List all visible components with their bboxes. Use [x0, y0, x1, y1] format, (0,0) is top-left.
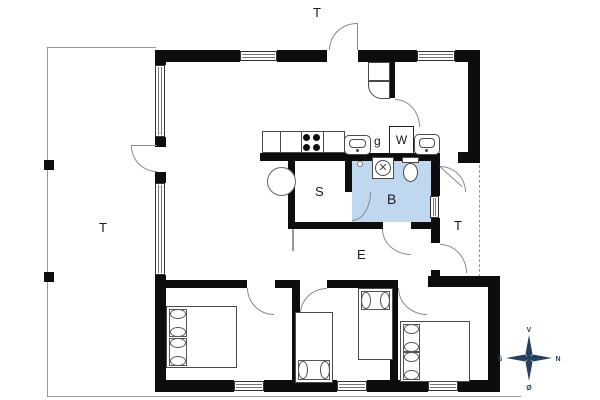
- utility-cabinet: [368, 81, 390, 99]
- wall-segment: [163, 280, 247, 288]
- bedroom3-door-arc: [398, 288, 427, 315]
- bathroom-sink: [414, 134, 440, 155]
- wall-segment: [458, 152, 480, 163]
- wall-segment: [327, 280, 398, 288]
- floor-drain: [357, 161, 363, 167]
- wall-segment: [431, 270, 440, 278]
- hall-label: E: [357, 248, 366, 261]
- compass-arm-left: [506, 355, 529, 362]
- screen-line: [292, 229, 294, 251]
- stove-burner: [303, 134, 310, 141]
- terrace-top-label: T: [313, 6, 321, 19]
- compass-west-label: V: [527, 327, 532, 334]
- pillow: [169, 309, 187, 337]
- floor-drain-label: g: [374, 135, 381, 147]
- wall-segment: [288, 222, 352, 229]
- toilet-bowl: [403, 163, 418, 182]
- counter-divider: [280, 132, 281, 152]
- window: [155, 65, 165, 137]
- stove-burner: [313, 144, 320, 151]
- wall-segment: [155, 50, 166, 65]
- compass-north-label: N: [555, 356, 560, 363]
- utility-door-arc: [395, 99, 420, 127]
- bathroom-label: B: [387, 192, 396, 206]
- bathroom-door-arc: [382, 229, 411, 255]
- utility-cabinet: [368, 62, 390, 81]
- pillow: [169, 338, 187, 366]
- wall-segment: [155, 172, 166, 183]
- compass-arm-up: [526, 335, 533, 358]
- compass-star: V N S Ø: [498, 327, 561, 392]
- wall-segment: [431, 218, 440, 243]
- bedroom1-door-arc: [247, 288, 274, 315]
- terrace-edge-top: [48, 47, 156, 48]
- terrace-door-arc: [131, 146, 157, 172]
- washing-machine-label: W: [396, 133, 407, 147]
- window: [155, 183, 165, 275]
- stove-burner: [313, 134, 320, 141]
- compass-arm-down: [526, 358, 533, 381]
- double-bed: [166, 306, 237, 368]
- pillow: [361, 291, 390, 310]
- compass-south-label: S: [498, 356, 503, 363]
- wall-segment: [345, 222, 383, 229]
- pillow: [298, 360, 330, 380]
- round-table: [267, 167, 296, 196]
- compass-arm-right: [529, 355, 552, 362]
- wall-segment: [155, 50, 240, 62]
- kitchen-sink: [344, 135, 371, 155]
- entrance-door-leaf: [357, 23, 358, 50]
- counter-divider: [323, 132, 324, 152]
- window: [240, 51, 277, 61]
- entrance-door-arc: [329, 23, 357, 50]
- double-bed: [400, 321, 470, 382]
- window: [337, 381, 367, 391]
- terrace-post: [44, 272, 54, 282]
- single-bed: [295, 312, 333, 383]
- bedroom2-door-arc: [300, 288, 327, 314]
- counter-divider: [301, 132, 302, 152]
- stove-burner: [303, 144, 310, 151]
- pillow: [403, 324, 420, 352]
- wall-segment: [345, 161, 352, 192]
- window: [417, 51, 455, 61]
- terrace-right-label: T: [454, 219, 462, 232]
- window: [430, 196, 439, 218]
- terrace-post: [44, 160, 54, 170]
- window: [428, 381, 458, 391]
- single-bed: [358, 288, 393, 360]
- terrace-edge-bottom: [47, 396, 521, 397]
- terrace-left-label: T: [99, 221, 107, 234]
- window: [234, 381, 264, 391]
- washing-machine: W: [389, 126, 414, 154]
- wall-segment: [155, 380, 234, 392]
- sauna-label: S: [315, 185, 324, 198]
- compass-rose: V N S Ø: [494, 322, 564, 392]
- wall-segment: [155, 275, 166, 392]
- wall-segment: [358, 50, 417, 62]
- wall-segment: [468, 50, 480, 163]
- floor-plan: W T T T S B E g V: [0, 0, 600, 400]
- roof-overhang-dashed-line: [479, 165, 480, 277]
- east-terrace-door-arc: [440, 244, 467, 273]
- compass-east-label: Ø: [526, 385, 532, 392]
- shower-drain: [372, 157, 394, 179]
- compass-center: [527, 356, 532, 361]
- terrace-edge-left: [47, 47, 48, 397]
- wall-segment: [277, 50, 327, 62]
- pillow: [403, 352, 420, 380]
